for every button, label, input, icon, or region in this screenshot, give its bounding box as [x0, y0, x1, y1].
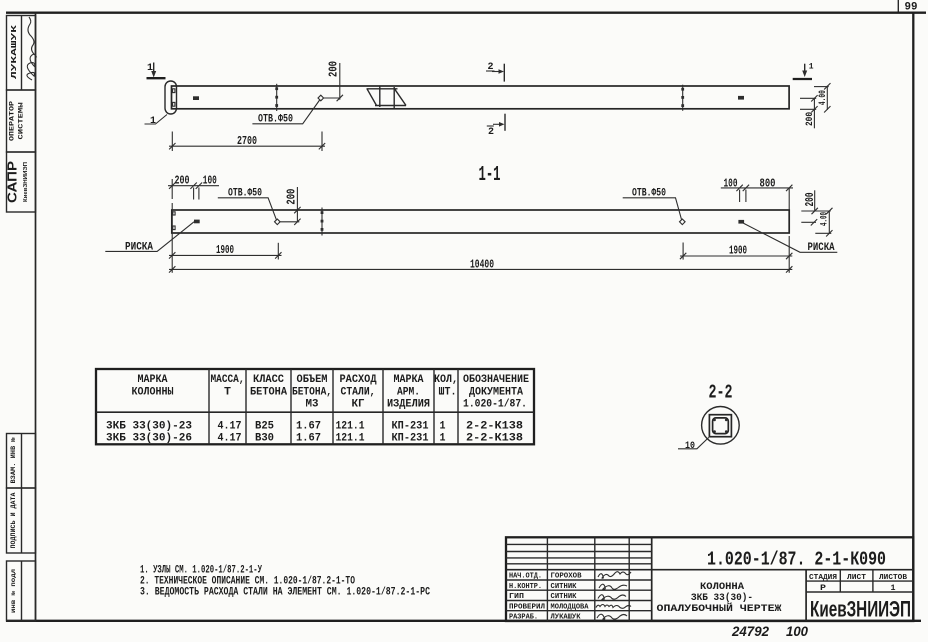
- svg-text:100: 100: [203, 173, 217, 187]
- svg-text:В30: В30: [255, 433, 274, 445]
- svg-text:ПОДПИСЬ И ДАТА: ПОДПИСЬ И ДАТА: [10, 492, 17, 548]
- svg-text:КГ: КГ: [352, 399, 365, 411]
- svg-text:САПР: САПР: [5, 161, 20, 203]
- svg-text:РАЗРАБ.: РАЗРАБ.: [509, 614, 538, 622]
- svg-text:1-1: 1-1: [479, 164, 501, 187]
- svg-text:СИСТЕМЫ: СИСТЕМЫ: [18, 102, 25, 139]
- svg-text:2: 2: [488, 127, 494, 138]
- svg-text:2-2-К138: 2-2-К138: [466, 433, 523, 445]
- svg-text:2700: 2700: [237, 134, 257, 148]
- svg-text:ЛИСТ: ЛИСТ: [847, 574, 866, 582]
- svg-text:200: 200: [175, 173, 190, 187]
- svg-text:2-2-К138: 2-2-К138: [466, 421, 523, 433]
- svg-text:200: 200: [284, 189, 298, 205]
- svg-text:ВЗАМ. ИНВ №: ВЗАМ. ИНВ №: [10, 437, 17, 483]
- svg-text:СИТНИК: СИТНИК: [551, 593, 578, 601]
- svg-text:ГОРОХОВ: ГОРОХОВ: [551, 573, 583, 581]
- svg-text:ОБОЗНАЧЕНИЕ: ОБОЗНАЧЕНИЕ: [463, 374, 529, 386]
- svg-text:ИЗДЕЛИЯ: ИЗДЕЛИЯ: [387, 399, 430, 411]
- svg-text:3КБ 33(30)-26: 3КБ 33(30)-26: [106, 433, 192, 445]
- svg-text:ГИП: ГИП: [509, 593, 524, 601]
- svg-text:ИНВ № ПОДЛ: ИНВ № ПОДЛ: [10, 569, 17, 613]
- svg-text:МАССА,: МАССА,: [211, 374, 245, 386]
- svg-text:200: 200: [805, 112, 816, 126]
- svg-text:2-2: 2-2: [709, 382, 733, 404]
- svg-text:В25: В25: [255, 421, 274, 433]
- svg-text:1: 1: [440, 421, 446, 433]
- svg-text:ДОКУМЕНТА: ДОКУМЕНТА: [469, 386, 523, 398]
- svg-text:1.020-1/87. 2-1-К090: 1.020-1/87. 2-1-К090: [707, 548, 886, 570]
- svg-text:КП-231: КП-231: [392, 433, 429, 445]
- svg-text:121.1: 121.1: [336, 433, 365, 445]
- svg-text:МАРКА: МАРКА: [394, 374, 424, 386]
- svg-text:200: 200: [326, 61, 340, 77]
- svg-text:КЛАСС: КЛАСС: [253, 374, 284, 386]
- svg-text:3КБ 33(30)-23: 3КБ 33(30)-23: [106, 421, 192, 433]
- svg-text:1: 1: [150, 116, 156, 127]
- svg-text:БЕТОНА,: БЕТОНА,: [292, 386, 332, 398]
- svg-text:ШТ.: ШТ.: [439, 386, 457, 398]
- svg-text:24792: 24792: [731, 623, 769, 637]
- svg-text:БЕТОНА: БЕТОНА: [250, 386, 287, 398]
- svg-text:4.00: 4.00: [818, 90, 829, 105]
- svg-text:800: 800: [760, 176, 776, 190]
- svg-text:СТАЛИ,: СТАЛИ,: [341, 386, 376, 398]
- svg-text:10400: 10400: [470, 257, 494, 271]
- svg-text:121.1: 121.1: [336, 421, 365, 433]
- svg-text:КОЛОННЫ: КОЛОННЫ: [132, 386, 174, 398]
- svg-text:100: 100: [786, 623, 808, 637]
- svg-text:АРМ.: АРМ.: [397, 386, 420, 398]
- svg-text:Н.КОНТР.: Н.КОНТР.: [509, 583, 542, 591]
- svg-text:РАСХОД: РАСХОД: [340, 374, 377, 386]
- svg-text:1: 1: [809, 63, 814, 72]
- svg-text:ЛУКАШУК: ЛУКАШУК: [11, 24, 19, 79]
- svg-text:ЛУКАШУК: ЛУКАШУК: [551, 614, 582, 622]
- svg-text:СТАДИЯ: СТАДИЯ: [809, 574, 837, 582]
- svg-text:МАРКА: МАРКА: [138, 374, 168, 386]
- svg-text:ЛИСТОВ: ЛИСТОВ: [879, 574, 908, 582]
- svg-text:НАЧ.ОТД.: НАЧ.ОТД.: [509, 573, 542, 581]
- svg-text:ПРОВЕРИЛ: ПРОВЕРИЛ: [509, 603, 545, 611]
- svg-text:М3: М3: [306, 399, 319, 411]
- svg-text:100: 100: [724, 176, 738, 190]
- svg-text:1.020-1/87.: 1.020-1/87.: [463, 399, 527, 411]
- svg-text:КиевЗНИИЭП: КиевЗНИИЭП: [23, 162, 29, 202]
- svg-text:МОЛОДЦОВА: МОЛОДЦОВА: [551, 603, 590, 611]
- svg-text:КОЛ,: КОЛ,: [434, 374, 458, 386]
- svg-text:Т: Т: [224, 386, 231, 398]
- svg-text:1.67: 1.67: [296, 421, 321, 433]
- svg-text:1900: 1900: [729, 243, 747, 257]
- svg-text:4.00: 4.00: [819, 212, 830, 226]
- svg-text:4.17: 4.17: [218, 433, 242, 445]
- svg-text:1900: 1900: [216, 243, 234, 257]
- svg-text:ОПАЛУБОЧНЫЙ ЧЕРТЕЖ: ОПАЛУБОЧНЫЙ ЧЕРТЕЖ: [657, 601, 783, 615]
- svg-text:Р: Р: [820, 584, 826, 593]
- svg-text:ОПЕРАТОР: ОПЕРАТОР: [9, 101, 16, 141]
- svg-text:3. ВЕДОМОСТЬ РАСХОДА СТАЛИ НА: 3. ВЕДОМОСТЬ РАСХОДА СТАЛИ НА ЭЛЕМЕНТ СМ…: [140, 587, 430, 599]
- svg-text:1: 1: [440, 433, 446, 445]
- svg-text:КП-231: КП-231: [392, 421, 429, 433]
- svg-text:ОБЪЕМ: ОБЪЕМ: [297, 374, 328, 386]
- svg-text:1.67: 1.67: [296, 433, 321, 445]
- svg-text:4.17: 4.17: [218, 421, 242, 433]
- svg-text:КиевЗНИИЭП: КиевЗНИИЭП: [810, 597, 911, 622]
- svg-text:1: 1: [891, 584, 896, 593]
- svg-text:СИТНИК: СИТНИК: [551, 583, 578, 591]
- svg-text:10: 10: [685, 441, 695, 452]
- svg-text:200: 200: [803, 193, 817, 207]
